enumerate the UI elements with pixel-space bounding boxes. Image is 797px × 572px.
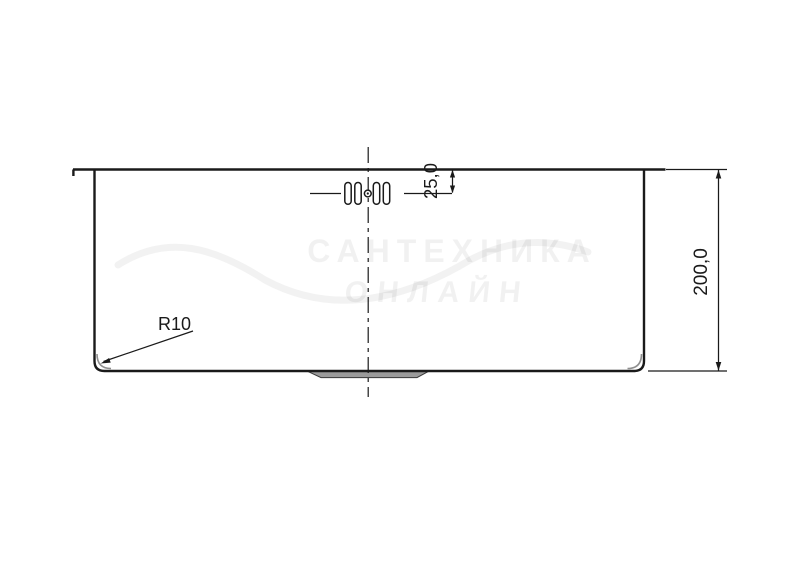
overflow-slot-1	[345, 183, 351, 205]
center-pilot-hole-dot	[367, 192, 369, 194]
dimension-depth: 200,0	[648, 170, 727, 372]
watermark-line1: САНТЕХНИКА	[307, 233, 597, 269]
right-corner-inner-arc	[628, 354, 642, 369]
sink-walls-and-bottom	[95, 170, 645, 372]
dim200-label: 200,0	[691, 248, 712, 296]
overflow-slot-3	[373, 183, 379, 205]
sink-front-view-drawing: САНТЕХНИКА ОНЛАЙН	[0, 0, 797, 572]
technical-drawing-canvas: САНТЕХНИКА ОНЛАЙН	[0, 0, 797, 572]
r10-leader-arrow	[101, 358, 111, 364]
watermark: САНТЕХНИКА ОНЛАЙН	[118, 233, 597, 309]
dim25-label: 25,0	[420, 163, 441, 199]
dim200-arrow-bottom	[716, 362, 722, 371]
corner-radius-callout: R10	[101, 314, 194, 364]
dim200-arrow-top	[716, 170, 722, 179]
sink-outline	[73, 170, 666, 372]
overflow-slot-4	[383, 183, 389, 205]
r10-label: R10	[158, 314, 191, 334]
dim25-arrow-down	[450, 186, 455, 194]
watermark-line2: ОНЛАЙН	[343, 275, 531, 309]
r10-leader-line	[104, 331, 194, 362]
overflow-slot-2	[355, 183, 361, 205]
dim25-arrow-up	[450, 170, 455, 178]
